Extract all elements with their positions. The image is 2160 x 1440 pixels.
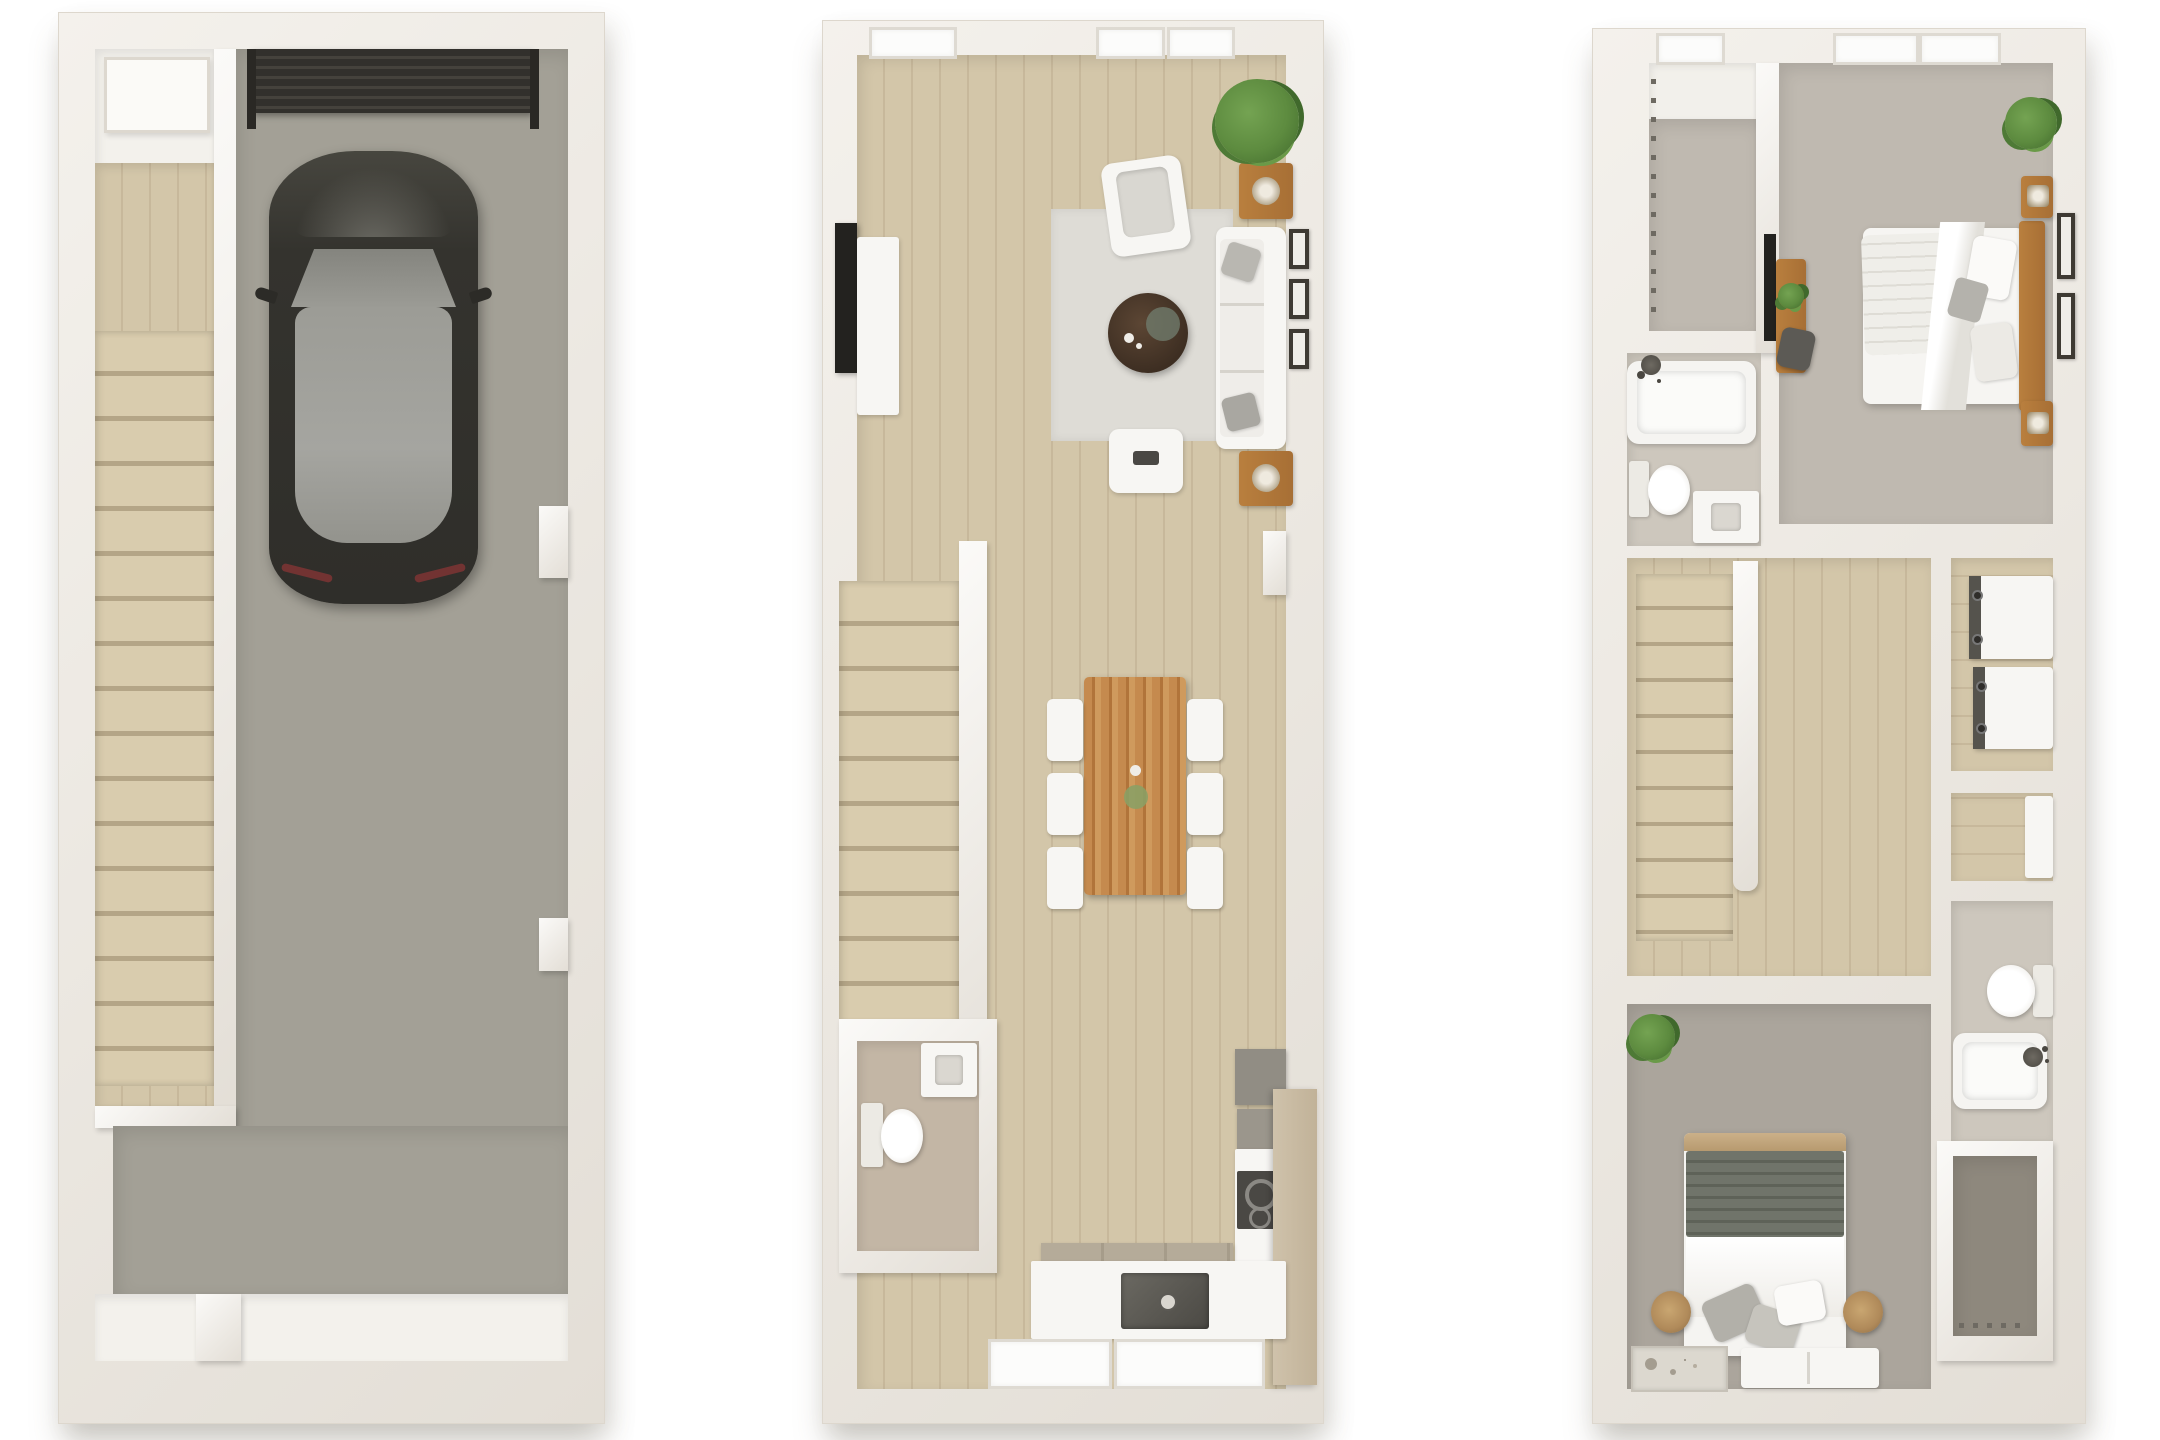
dryer-knob bbox=[1976, 681, 1987, 692]
side-table-bottom bbox=[1239, 451, 1293, 506]
bedroom2-blanket bbox=[1686, 1151, 1844, 1237]
powder-toilet-bowl bbox=[881, 1109, 923, 1163]
dining-table bbox=[1084, 677, 1186, 895]
window-living-right bbox=[1167, 27, 1235, 59]
bedroom2-lamp-right bbox=[1843, 1291, 1883, 1333]
walkin-closet-carpet bbox=[1649, 119, 1756, 331]
staircase-level1 bbox=[95, 331, 214, 1086]
coffee-table-tray bbox=[1146, 307, 1180, 341]
bathroom2-toilet-bowl bbox=[1987, 965, 2035, 1017]
bathroom1-vanity bbox=[1693, 491, 1759, 543]
washer bbox=[1969, 576, 2053, 659]
wall-art-1 bbox=[1289, 229, 1309, 269]
ottoman-tray bbox=[1133, 451, 1159, 465]
wall-art-3 bbox=[1289, 329, 1309, 369]
desk-plant bbox=[1778, 283, 1804, 309]
bedroom2-rug-decor bbox=[1645, 1358, 1657, 1370]
table-lamp-top bbox=[1252, 177, 1280, 205]
bathroom2-shower-head bbox=[2023, 1047, 2043, 1067]
closet-hanging-rod bbox=[1651, 79, 1656, 319]
garage-side-jamb-lower bbox=[539, 918, 568, 971]
powder-sink bbox=[935, 1055, 963, 1085]
kitchen-sink bbox=[1121, 1273, 1209, 1329]
linen-cabinet bbox=[2025, 796, 2053, 878]
primary-plant bbox=[2005, 97, 2057, 149]
window-primary-1 bbox=[1833, 33, 1919, 65]
window-closet bbox=[1656, 33, 1725, 65]
hall-railing-wall bbox=[1733, 561, 1758, 891]
bedroom2-bench bbox=[1741, 1348, 1879, 1388]
dining-centerpiece-candle bbox=[1130, 765, 1141, 776]
closet-entry-floor bbox=[1649, 63, 1756, 119]
primary-tv bbox=[1764, 234, 1776, 341]
garage-door-track-right bbox=[530, 49, 539, 129]
sofa bbox=[1216, 227, 1286, 449]
dining-chair-r1 bbox=[1187, 699, 1223, 761]
window-primary-2 bbox=[1919, 33, 2001, 65]
bathroom1-toilet-tank bbox=[1629, 461, 1649, 517]
staircase-level3 bbox=[1636, 574, 1733, 941]
dining-chair-l3 bbox=[1047, 847, 1083, 909]
garage-side-jamb-upper bbox=[539, 506, 568, 578]
closet2-carpet bbox=[1953, 1156, 2037, 1336]
bathroom1-sink bbox=[1711, 503, 1741, 531]
bathroom1-toilet-bowl bbox=[1648, 465, 1690, 515]
coffee-table bbox=[1108, 293, 1188, 373]
floorplan-canvas: { "title_visible_text": "", "palette": {… bbox=[0, 0, 2160, 1440]
tv bbox=[835, 223, 857, 373]
closet2-hanging-rod bbox=[1959, 1323, 2029, 1328]
dryer-door bbox=[1973, 667, 1985, 749]
coffee-table-decor bbox=[1124, 333, 1134, 343]
media-console bbox=[857, 237, 899, 415]
floorplan-level-2 bbox=[822, 20, 1324, 1424]
kitchen-faucet bbox=[1159, 1293, 1177, 1311]
hall-garage-wall bbox=[214, 49, 236, 1126]
bedroom2-bed-rail bbox=[1684, 1133, 1846, 1151]
primary-lamp-top bbox=[2027, 185, 2049, 207]
garage-door-track-left bbox=[247, 49, 256, 129]
bedroom2-pillow-3 bbox=[1773, 1279, 1827, 1327]
window-kitchen-rear-2 bbox=[1114, 1339, 1265, 1389]
primary-headboard bbox=[2019, 221, 2045, 411]
bathroom1-shower-head bbox=[1641, 355, 1661, 375]
kitchen-pantry-cabinet bbox=[1273, 1089, 1317, 1385]
dining-door-jamb bbox=[1263, 531, 1286, 595]
front-door bbox=[104, 57, 210, 133]
car-roof-glass bbox=[295, 307, 452, 543]
understairs-wall bbox=[95, 1106, 236, 1128]
living-plant bbox=[1215, 79, 1299, 163]
floorplan-level-1 bbox=[58, 12, 605, 1424]
primary-wall-art-1 bbox=[2057, 213, 2075, 279]
dining-chair-r2 bbox=[1187, 773, 1223, 835]
side-table-top bbox=[1239, 163, 1293, 219]
dining-chair-l2 bbox=[1047, 773, 1083, 835]
washer-door bbox=[1969, 576, 1981, 659]
car-windshield bbox=[291, 249, 456, 307]
washer-knob-2 bbox=[1972, 634, 1983, 645]
garage-door bbox=[253, 49, 533, 113]
rear-door-jamb bbox=[196, 1294, 241, 1361]
flex-room-floor bbox=[113, 1126, 568, 1294]
window-kitchen-rear-1 bbox=[988, 1339, 1112, 1389]
window-living-left bbox=[869, 27, 957, 59]
primary-lamp-bottom bbox=[2027, 412, 2049, 434]
dining-centerpiece-bowl bbox=[1124, 785, 1148, 809]
primary-nightstand-top bbox=[2021, 176, 2053, 218]
table-lamp-bottom bbox=[1252, 464, 1280, 492]
ottoman bbox=[1109, 429, 1183, 493]
primary-wall-art-2 bbox=[2057, 293, 2075, 359]
rear-entry-floor bbox=[95, 1294, 568, 1361]
powder-toilet-tank bbox=[861, 1103, 883, 1167]
dining-chair-r3 bbox=[1187, 847, 1223, 909]
floorplan-level-3 bbox=[1592, 28, 2086, 1424]
bedroom2-plant bbox=[1629, 1014, 1675, 1060]
dining-chair-l1 bbox=[1047, 699, 1083, 761]
armchair bbox=[1100, 154, 1192, 258]
primary-bed bbox=[1863, 228, 2021, 404]
bedroom2-lamp-left bbox=[1651, 1291, 1691, 1333]
car bbox=[269, 151, 478, 604]
wall-art-2 bbox=[1289, 279, 1309, 319]
powder-vanity bbox=[921, 1043, 977, 1097]
dryer bbox=[1973, 667, 2053, 749]
bathroom2-toilet-tank bbox=[2033, 965, 2053, 1017]
car-hood-sheen bbox=[293, 167, 454, 237]
bedroom2-bench-split bbox=[1807, 1352, 1810, 1384]
bathroom2-tub bbox=[1953, 1033, 2047, 1109]
bathroom1-tub-inner bbox=[1637, 371, 1746, 434]
dryer-knob-2 bbox=[1976, 723, 1987, 734]
primary-nightstand-bottom bbox=[2021, 401, 2053, 446]
cooktop-burner-2 bbox=[1249, 1207, 1271, 1229]
window-living-mid bbox=[1096, 27, 1165, 59]
washer-knob bbox=[1972, 590, 1983, 601]
bedroom2-bed bbox=[1684, 1133, 1846, 1356]
armchair-cushion bbox=[1115, 166, 1176, 239]
primary-pillow-2 bbox=[1969, 321, 2018, 382]
bedroom2-rug bbox=[1631, 1346, 1728, 1392]
